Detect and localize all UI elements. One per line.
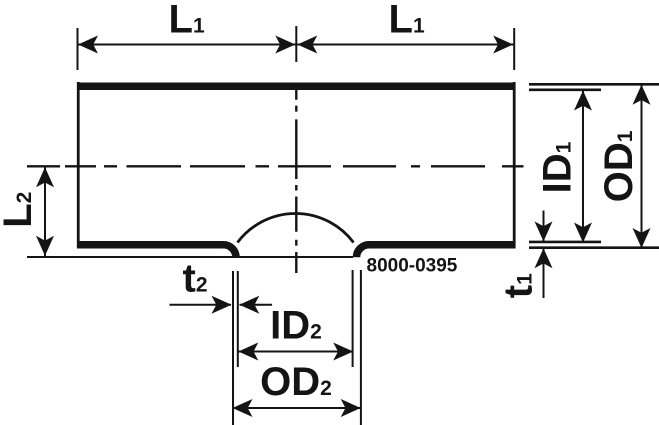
svg-text:ID1: ID1 [536, 141, 580, 193]
svg-text:8000-0395: 8000-0395 [367, 255, 458, 276]
svg-text:L1: L1 [389, 0, 425, 42]
svg-text:t1: t1 [496, 273, 540, 298]
svg-text:L2: L2 [0, 192, 40, 228]
svg-text:OD1: OD1 [597, 130, 641, 202]
svg-text:OD2: OD2 [260, 360, 332, 404]
svg-text:ID2: ID2 [270, 304, 322, 348]
svg-text:L1: L1 [169, 0, 205, 42]
svg-text:t2: t2 [183, 257, 208, 301]
